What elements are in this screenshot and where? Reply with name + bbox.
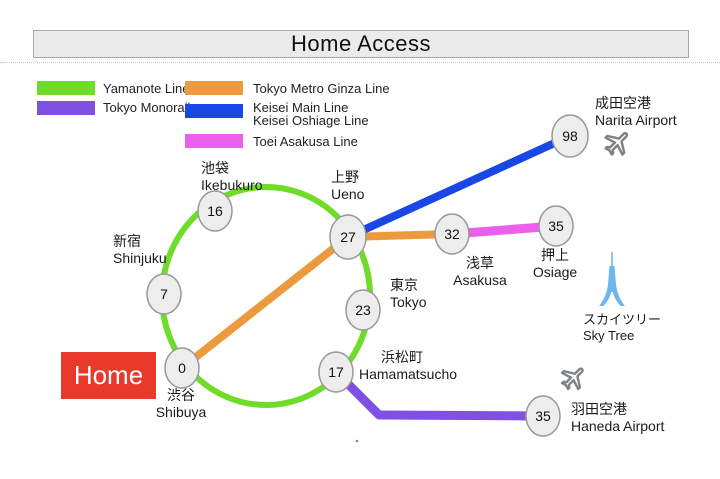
ueno-label-en: Ueno bbox=[331, 186, 364, 203]
tokyo-label-jp: 東京 bbox=[390, 277, 427, 294]
home-label: Home bbox=[74, 360, 143, 391]
shinjuku-label: 新宿 Shinjuku bbox=[113, 233, 167, 267]
skytree-icon bbox=[599, 252, 625, 306]
shinjuku-label-jp: 新宿 bbox=[113, 233, 167, 250]
narita-airport-label-en: Narita Airport bbox=[595, 112, 677, 129]
haneda-airport-label: 羽田空港 Haneda Airport bbox=[571, 401, 664, 435]
asakusa-label: 浅草 Asakusa bbox=[446, 255, 514, 289]
station-minutes: 0 bbox=[178, 360, 186, 376]
station-narita: 98 bbox=[552, 115, 588, 157]
ikebukuro-label: 池袋 Ikebukuro bbox=[201, 160, 262, 194]
station-ikebukuro: 16 bbox=[198, 191, 232, 231]
asakusa-label-jp: 浅草 bbox=[446, 255, 514, 272]
oshiage-label-en: Osiage bbox=[531, 264, 579, 281]
station-minutes: 16 bbox=[207, 203, 223, 219]
tokyo-label: 東京 Tokyo bbox=[390, 277, 427, 311]
narita-airport-label: 成田空港 Narita Airport bbox=[595, 95, 677, 129]
shibuya-label-en: Shibuya bbox=[150, 404, 212, 421]
haneda-airport-label-jp: 羽田空港 bbox=[571, 401, 664, 418]
skytree-label-jp: スカイツリー bbox=[583, 312, 661, 328]
station-hamamatsucho: 17 bbox=[319, 352, 353, 392]
hamamatsucho-label-jp: 浜松町 bbox=[381, 349, 457, 366]
ikebukuro-label-jp: 池袋 bbox=[201, 160, 262, 177]
station-shibuya: 0 bbox=[165, 348, 199, 388]
hamamatsucho-label: 浜松町 Hamamatsucho bbox=[359, 349, 457, 383]
tokyo-label-en: Tokyo bbox=[390, 294, 427, 311]
station-minutes: 35 bbox=[535, 408, 551, 424]
station-shinjuku: 7 bbox=[147, 274, 181, 314]
station-minutes: 23 bbox=[355, 302, 371, 318]
oshiage-label: 押上 Osiage bbox=[531, 247, 579, 281]
slide-canvas: { "title": "Home Access", "colors": { "y… bbox=[0, 0, 720, 479]
skytree-label-en: Sky Tree bbox=[583, 328, 661, 344]
station-oshiage: 35 bbox=[539, 206, 573, 246]
narita-airplane-icon bbox=[600, 125, 634, 159]
ueno-label-jp: 上野 bbox=[331, 169, 364, 186]
narita-airport-label-jp: 成田空港 bbox=[595, 95, 677, 112]
station-asakusa: 32 bbox=[435, 214, 469, 254]
ueno-label: 上野 Ueno bbox=[331, 169, 364, 203]
station-haneda: 35 bbox=[526, 396, 560, 436]
station-minutes: 7 bbox=[160, 286, 168, 302]
station-ueno: 27 bbox=[330, 215, 366, 259]
station-tokyo: 23 bbox=[346, 290, 380, 330]
shinjuku-label-en: Shinjuku bbox=[113, 250, 167, 267]
haneda-airplane-icon bbox=[557, 361, 590, 394]
asakusa-label-en: Asakusa bbox=[446, 272, 514, 289]
ikebukuro-label-en: Ikebukuro bbox=[201, 177, 262, 194]
haneda-airport-label-en: Haneda Airport bbox=[571, 418, 664, 435]
station-minutes: 27 bbox=[340, 229, 356, 245]
station-minutes: 32 bbox=[444, 226, 460, 242]
oshiage-label-jp: 押上 bbox=[531, 247, 579, 264]
station-minutes: 17 bbox=[328, 364, 344, 380]
small-dot bbox=[356, 440, 359, 443]
home-box: Home bbox=[61, 352, 156, 399]
station-minutes: 35 bbox=[548, 218, 564, 234]
skytree-label: スカイツリー Sky Tree bbox=[583, 312, 661, 344]
station-minutes: 98 bbox=[562, 128, 578, 144]
shibuya-label-jp: 渋谷 bbox=[150, 387, 212, 404]
shibuya-label: 渋谷 Shibuya bbox=[150, 387, 212, 421]
hamamatsucho-label-en: Hamamatsucho bbox=[359, 366, 457, 383]
